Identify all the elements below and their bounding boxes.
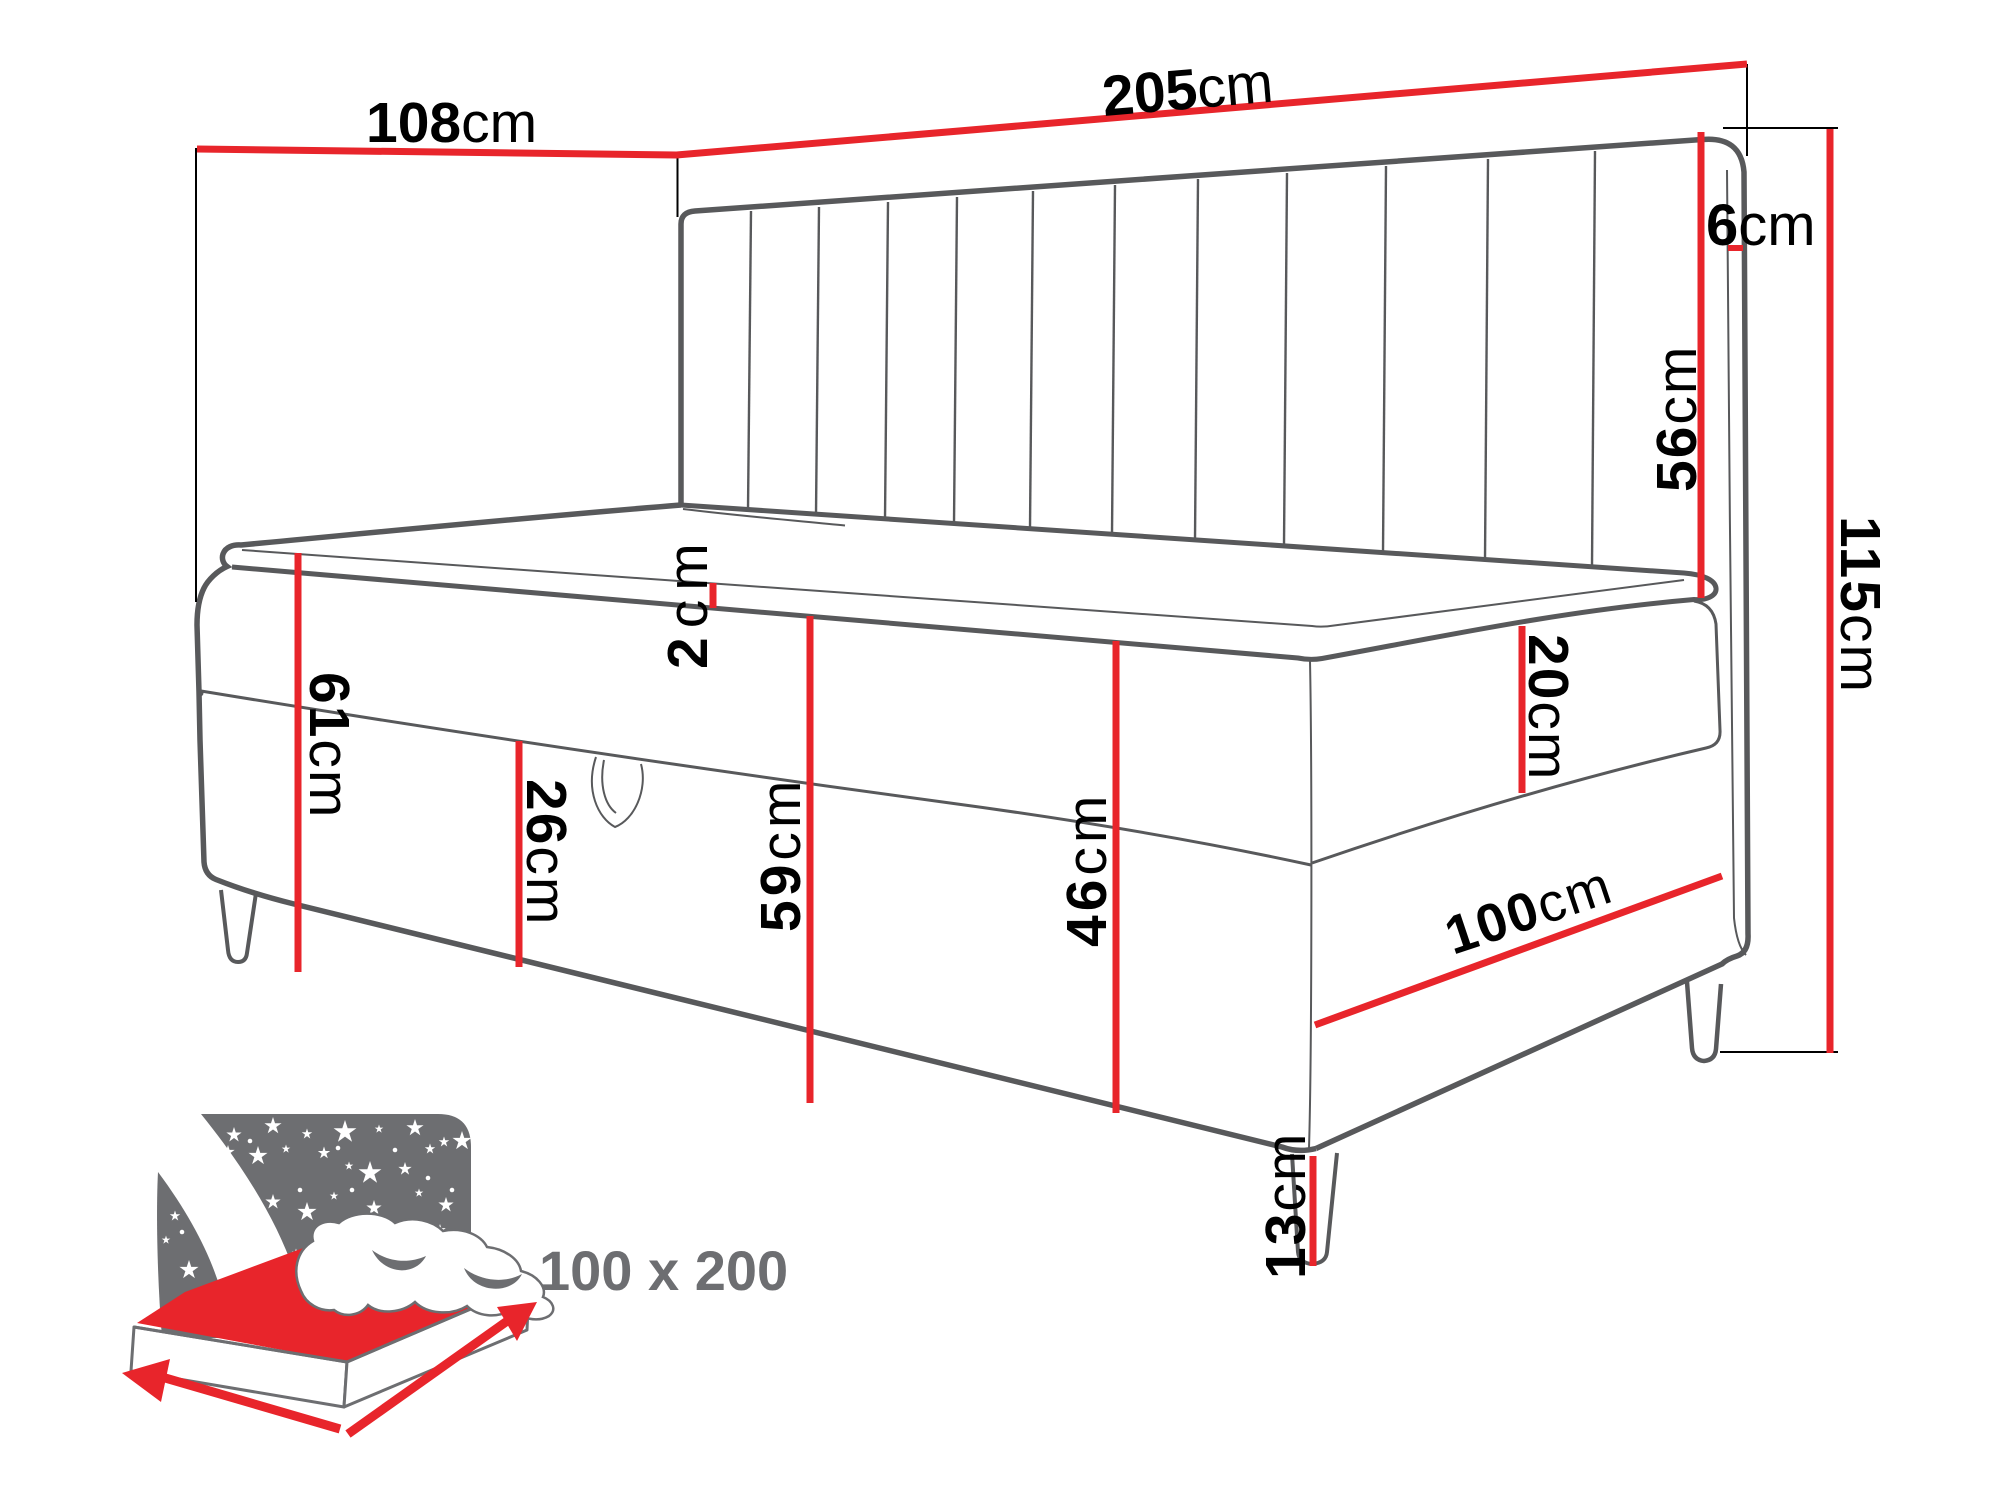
svg-text:2cm: 2cm xyxy=(656,534,720,669)
svg-text:115cm: 115cm xyxy=(1828,516,1892,694)
svg-text:20cm: 20cm xyxy=(1516,634,1580,781)
svg-text:100 x 200: 100 x 200 xyxy=(539,1239,788,1302)
svg-text:108cm: 108cm xyxy=(366,91,537,155)
svg-text:61cm: 61cm xyxy=(297,672,361,819)
svg-text:13cm: 13cm xyxy=(1254,1132,1318,1279)
svg-text:6cm: 6cm xyxy=(1706,193,1816,258)
svg-text:26cm: 26cm xyxy=(514,779,578,926)
svg-text:59cm: 59cm xyxy=(749,777,813,932)
svg-text:56cm: 56cm xyxy=(1645,345,1709,492)
svg-text:46cm: 46cm xyxy=(1055,792,1119,947)
